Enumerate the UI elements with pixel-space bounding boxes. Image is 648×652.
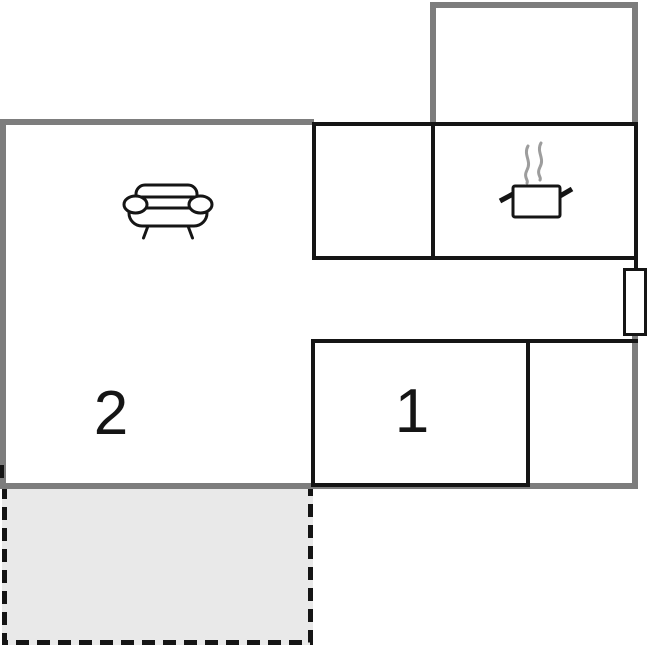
room-label-2: 2	[71, 382, 151, 446]
wall-opening-dash	[0, 465, 4, 478]
wall-rooms-bottom	[312, 256, 638, 260]
sofa-legs	[144, 226, 193, 238]
sofa-armrest-right	[189, 196, 212, 213]
steam-icon	[539, 143, 542, 180]
wall-kitchen-right	[634, 122, 638, 270]
wall-annex-left	[430, 2, 436, 122]
wall-kitchen-divider	[431, 122, 435, 260]
terrace-dashed-border	[0, 0, 648, 652]
sofa-armrest-left	[124, 196, 147, 213]
pot-handle-right	[560, 189, 572, 196]
room-label-1: 1	[372, 380, 452, 444]
pot-body	[513, 186, 560, 217]
pot-handle-left	[500, 194, 513, 201]
sofa-icon	[122, 183, 214, 241]
wall-annex-top	[430, 2, 638, 8]
window-marker	[623, 268, 647, 336]
wall-side-room-top	[530, 339, 638, 343]
wall-rooms-top	[312, 122, 638, 126]
cooking-pot-icon	[497, 140, 575, 222]
wall-exterior-left	[0, 119, 6, 489]
wall-annex-right	[632, 2, 638, 122]
wall-exterior-right	[632, 335, 638, 489]
steam-icon	[526, 146, 529, 183]
wall-exterior-top	[0, 119, 314, 125]
floor-plan: 1 2	[0, 0, 648, 652]
wall-hall-left	[312, 122, 316, 260]
